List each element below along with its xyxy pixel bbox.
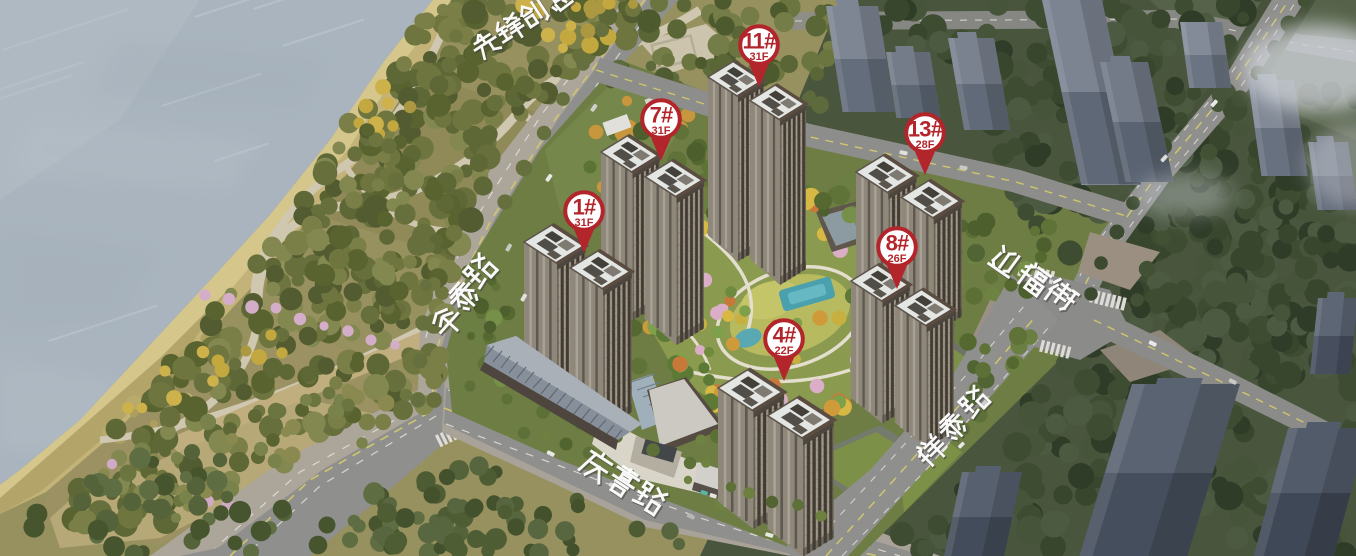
svg-text:1#: 1#	[573, 195, 596, 220]
svg-text:31F: 31F	[652, 125, 671, 137]
svg-text:22F: 22F	[775, 345, 794, 357]
svg-text:11#: 11#	[742, 29, 776, 54]
svg-text:31F: 31F	[575, 217, 594, 229]
svg-text:4#: 4#	[773, 323, 796, 348]
svg-text:8#: 8#	[886, 231, 909, 256]
svg-text:26F: 26F	[888, 253, 907, 265]
svg-text:7#: 7#	[650, 103, 673, 128]
svg-text:31F: 31F	[750, 51, 769, 63]
svg-text:28F: 28F	[916, 139, 935, 151]
svg-text:13#: 13#	[908, 117, 943, 142]
